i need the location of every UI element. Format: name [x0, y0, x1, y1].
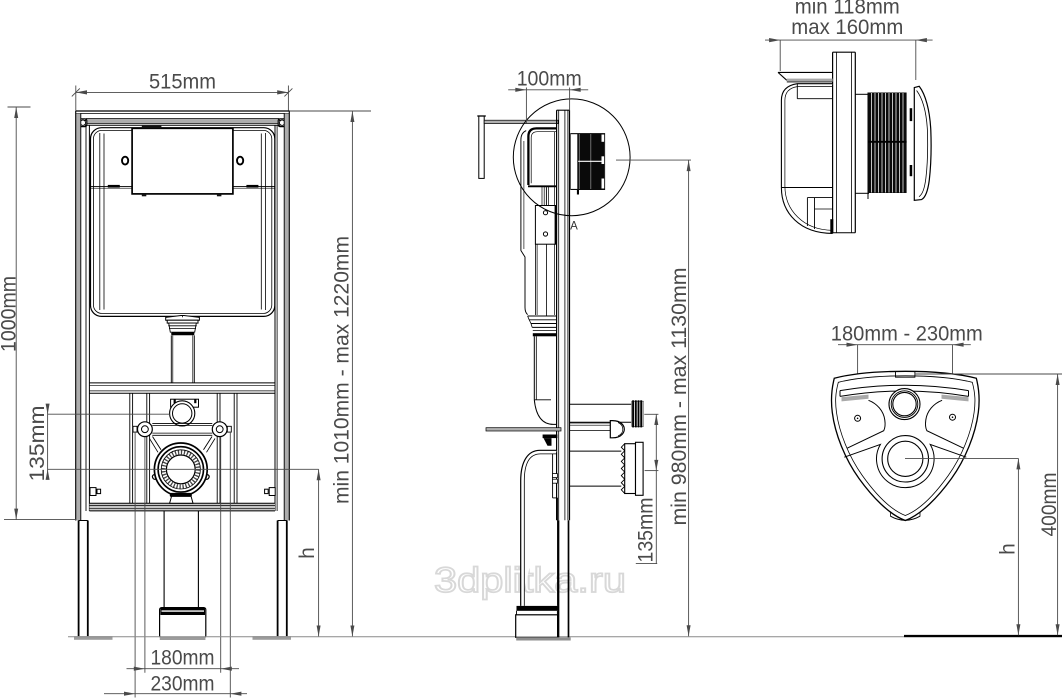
- svg-text:400mm: 400mm: [1038, 473, 1061, 537]
- svg-text:230mm: 230mm: [151, 673, 215, 696]
- svg-text:max 160mm: max 160mm: [791, 16, 903, 39]
- svg-text:135mm: 135mm: [635, 498, 658, 563]
- svg-text:h: h: [997, 543, 1020, 555]
- svg-text:180mm - 230mm: 180mm - 230mm: [831, 323, 983, 346]
- svg-text:180mm: 180mm: [151, 647, 215, 670]
- svg-text:3dplitka.ru: 3dplitka.ru: [434, 561, 626, 600]
- svg-text:h: h: [296, 547, 319, 559]
- svg-text:1000mm: 1000mm: [0, 276, 21, 352]
- svg-text:min 980mm - max 1130mm: min 980mm - max 1130mm: [668, 268, 691, 526]
- svg-text:A: A: [570, 221, 578, 233]
- svg-text:min 1010mm - max 1220mm: min 1010mm - max 1220mm: [331, 236, 354, 504]
- svg-text:515mm: 515mm: [149, 71, 216, 94]
- svg-text:135mm: 135mm: [26, 406, 49, 482]
- svg-text:100mm: 100mm: [517, 68, 582, 91]
